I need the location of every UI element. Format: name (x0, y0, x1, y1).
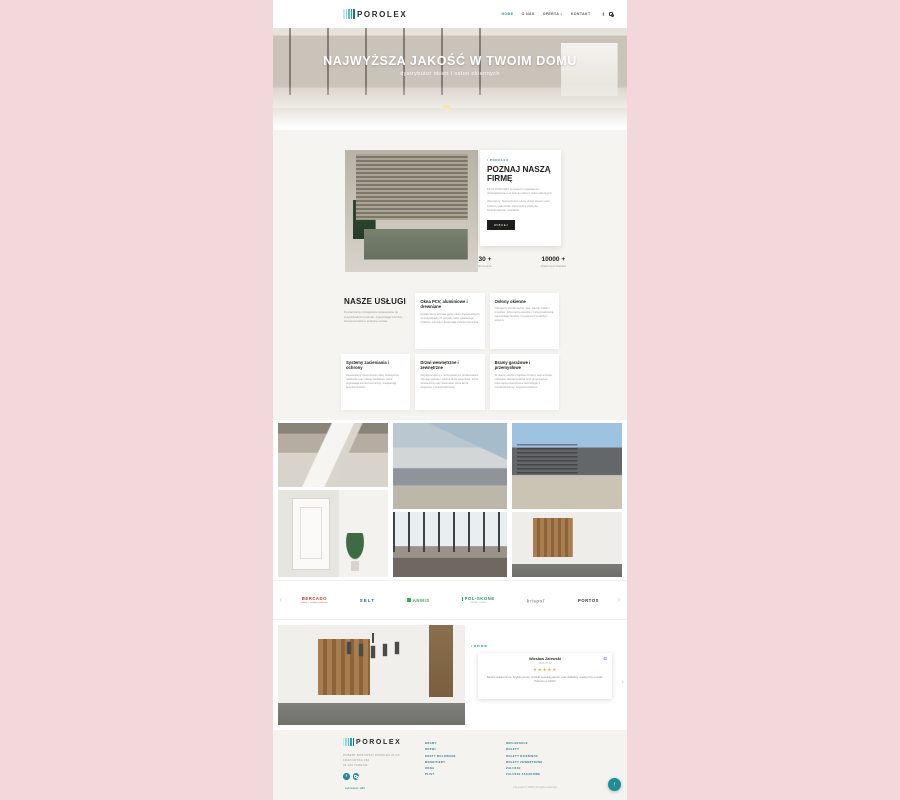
footer-logo[interactable]: POROLEX (343, 738, 401, 746)
carousel-left-icon[interactable]: ‹ (277, 596, 285, 604)
brand-tagline: rolety i osłony okienne (301, 602, 328, 604)
review-next-icon[interactable]: › (621, 678, 624, 686)
gallery-photo-door[interactable] (278, 490, 388, 577)
gallery-photo-wood-interior[interactable] (512, 512, 622, 577)
service-card-text: Oferujemy szeroki wybór rolet, żaluzji, … (495, 307, 554, 323)
review-card[interactable]: G Wiesław Zalewski 2025-05-12 ★★★★★ Bard… (478, 653, 612, 699)
gallery-photo-awning[interactable] (278, 423, 388, 487)
service-card-text: Współpracujemy z renomowanymi producenta… (420, 374, 479, 390)
gallery-section (273, 420, 627, 580)
stats: 30 + lat na rynku 10000 + obsłużonych kl… (478, 256, 566, 268)
brand-anwis[interactable]: ANWIS (407, 598, 429, 603)
footer: POROLEX ROBERT BOROWSKI POROLEX-PLUS KRA… (273, 730, 627, 800)
review-text: Bardzo solidna firma. Szybki pomiar, pro… (484, 676, 606, 684)
footer-credit[interactable]: wykonanie: eBiz (345, 786, 365, 790)
carousel-right-icon[interactable]: › (615, 596, 623, 604)
brand-bercado[interactable]: BERCADO rolety i osłony okienne (301, 596, 328, 604)
brand-name: SELT (360, 598, 375, 603)
hero-copy: NAJWYŻSZA JAKOŚĆ W TWOIM DOMU dystrybuto… (273, 54, 627, 77)
service-card-title: Osłony okienne (495, 299, 554, 304)
stat-clients: 10000 + obsłużonych klientów (541, 256, 566, 268)
footer-link-kraty[interactable]: KRATY ROLOWANE (425, 753, 456, 759)
chandelier-graphic (372, 633, 374, 643)
gallery-column (393, 423, 507, 577)
service-card-title: Bramy garażowe i przemysłowe (495, 360, 554, 371)
services-intro-text: Dostarczamy rozwiązania dopasowane do in… (344, 310, 407, 324)
plant-graphic (344, 533, 366, 563)
brand-pol-skone[interactable]: POL-SKONE DRZWI OKNA (462, 596, 495, 604)
services-grid: NASZE USŁUGI Dostarczamy rozwiązania dop… (341, 293, 559, 410)
footer-address: ROBERT BOROWSKI POROLEX-PLUS KRAKOWSKA 2… (343, 754, 400, 769)
about-section: / POROLEX POZNAJ NASZĄ FIRMĘ Firma POROL… (273, 130, 627, 285)
gallery-column (278, 423, 388, 577)
about-paragraph-1: Firma POROLEX to zespół z wieloletnim do… (487, 187, 554, 196)
facebook-icon[interactable]: f (343, 773, 350, 780)
nav-o-nas[interactable]: O NAS (522, 12, 535, 16)
arrow-up-icon: ↑ (613, 782, 616, 788)
hero-image (273, 28, 627, 130)
stat-years: 30 + lat na rynku (478, 256, 492, 268)
brand-portos[interactable]: PORTOS (578, 598, 599, 603)
brand-name: BERCADO (301, 596, 328, 601)
stat-clients-label: obsłużonych klientów (541, 265, 566, 269)
footer-link-zaluzje-fasadowe[interactable]: ŻALUZJE FASADOWE (506, 771, 543, 777)
brand-name: krispol• (527, 597, 546, 603)
services-intro: NASZE USŁUGI Dostarczamy rozwiązania dop… (341, 293, 410, 349)
footer-logo-text: POROLEX (356, 739, 401, 746)
main-nav: HOME O NAS OFERTA∨ KONTAKT f (502, 12, 614, 17)
footer-link-plisy[interactable]: PLISY (425, 771, 456, 777)
service-card-text: W naszej ofercie znajdziesz bramy segmen… (495, 374, 554, 390)
about-card: / POROLEX POZNAJ NASZĄ FIRMĘ Firma POROL… (480, 150, 561, 246)
review-stars: ★★★★★ (484, 667, 606, 673)
footer-social: f (343, 773, 359, 780)
hero-section: NAJWYŻSZA JAKOŚĆ W TWOIM DOMU dystrybuto… (273, 28, 627, 130)
door-panel-graphic (292, 498, 330, 570)
instagram-icon[interactable] (609, 12, 613, 16)
brand-tagline: DRZWI OKNA (462, 602, 495, 604)
service-card-text: Zapewniamy nowoczesne rolety zewnętrzne,… (346, 374, 405, 390)
services-title: NASZE USŁUGI (344, 297, 407, 306)
nav-oferta-label: OFERTA (543, 12, 560, 16)
logo-icon (343, 738, 354, 746)
services-section: NASZE USŁUGI Dostarczamy rozwiązania dop… (273, 285, 627, 420)
instagram-icon[interactable] (353, 773, 360, 780)
stat-years-value: 30 + (478, 256, 492, 263)
logo-text: POROLEX (357, 10, 407, 19)
facebook-icon[interactable]: f (603, 12, 605, 17)
brand-name: PORTOS (578, 598, 599, 603)
footer-links-column-2: REFLEKSOLE ROLETY ROLETY DZIEŃ/NOC ROLET… (506, 740, 543, 778)
brand-bar-icon (462, 597, 464, 601)
brand-dot-icon: • (544, 597, 546, 601)
website-page: POROLEX HOME O NAS OFERTA∨ KONTAKT f NAJ… (273, 0, 627, 800)
header-social: f (603, 12, 614, 17)
logo[interactable]: POROLEX (343, 9, 407, 19)
gallery-photo-pergola[interactable] (512, 423, 622, 509)
reviews-section: / OPINIE G Wiesław Zalewski 2025-05-12 ★… (273, 620, 627, 730)
brand-name: POL-SKONE (462, 596, 495, 601)
about-photo (345, 150, 478, 272)
review-date: 2025-05-12 (484, 662, 606, 665)
scroll-to-top-button[interactable]: ↑ (608, 778, 621, 791)
instagram-glyph (354, 775, 357, 778)
service-card-okna[interactable]: Okna PCV, aluminiowe i drewniane Dostarc… (415, 293, 484, 349)
service-card-text: Dostarczamy szeroką gamę okien dopasowan… (420, 313, 479, 325)
service-card-oslony[interactable]: Osłony okienne Oferujemy szeroki wybór r… (490, 293, 559, 349)
review-author: Wiesław Zalewski (484, 657, 606, 661)
footer-copyright: Copyright © 2025. All rights reserved. (513, 786, 558, 789)
reviews-photo (278, 625, 465, 725)
hero-title: NAJWYŻSZA JAKOŚĆ W TWOIM DOMU (273, 54, 627, 68)
brands-carousel: ‹ BERCADO rolety i osłony okienne SELT A… (273, 580, 627, 620)
about-paragraph-2: Oferujemy: Nowoczesne okna, drzwi, bramy… (487, 199, 554, 213)
more-button[interactable]: WIĘCEJ (487, 220, 515, 230)
stat-years-label: lat na rynku (478, 265, 492, 269)
service-card-zacienianie[interactable]: Systemy zacieniania i ochrony Zapewniamy… (341, 354, 410, 410)
brand-row: BERCADO rolety i osłony okienne SELT ANW… (285, 596, 615, 604)
gallery-column (512, 423, 622, 577)
logo-icon (343, 9, 355, 19)
reviews-tag: / OPINIE (471, 644, 488, 648)
brand-square-icon (407, 598, 411, 602)
service-card-title: Drzwi wewnętrzne i zewnętrzne (420, 360, 479, 371)
gallery-photo-house[interactable] (393, 423, 507, 509)
header: POROLEX HOME O NAS OFERTA∨ KONTAKT f (273, 0, 627, 28)
service-card-title: Okna PCV, aluminiowe i drewniane (420, 299, 479, 310)
service-card-title: Systemy zacieniania i ochrony (346, 360, 405, 371)
service-card-bramy[interactable]: Bramy garażowe i przemysłowe W naszej of… (490, 354, 559, 410)
brand-selt[interactable]: SELT (360, 598, 375, 603)
nav-kontakt[interactable]: KONTAKT (571, 12, 591, 16)
chevron-down-icon: ∨ (560, 12, 563, 16)
service-card-drzwi[interactable]: Drzwi wewnętrzne i zewnętrzne Współpracu… (415, 354, 484, 410)
brand-name: ANWIS (407, 598, 429, 603)
gallery-photo-conservatory[interactable] (393, 512, 507, 577)
hero-subtitle: dystrybutor okien i osłon okiennych (273, 71, 627, 77)
stat-clients-value: 10000 + (541, 256, 566, 263)
google-icon: G (603, 656, 607, 661)
brand-krispol[interactable]: krispol• (527, 597, 546, 603)
about-tag: / POROLEX (487, 158, 554, 162)
nav-home[interactable]: HOME (502, 12, 514, 16)
nav-oferta[interactable]: OFERTA∨ (543, 12, 563, 16)
company-city: 33-100 TARNÓW (343, 764, 400, 769)
about-title: POZNAJ NASZĄ FIRMĘ (487, 165, 554, 183)
footer-links-column-1: BRAMY DRZWI KRATY ROLOWANE MOSKITIERY OK… (425, 740, 456, 778)
footer-link-rolety-dzien-noc[interactable]: ROLETY DZIEŃ/NOC (506, 753, 543, 759)
